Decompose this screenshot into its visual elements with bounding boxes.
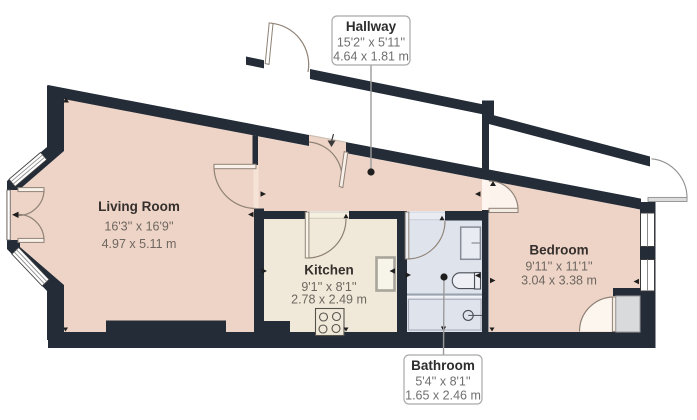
svg-text:3.04 x 3.38 m: 3.04 x 3.38 m (521, 274, 597, 288)
svg-text:16'3'' x 16'9'': 16'3'' x 16'9'' (104, 220, 173, 234)
svg-text:Living Room: Living Room (98, 199, 180, 214)
svg-text:Kitchen: Kitchen (304, 263, 354, 278)
svg-text:5'4'' x 8'1'': 5'4'' x 8'1'' (415, 375, 470, 389)
svg-text:9'11'' x 11'1'': 9'11'' x 11'1'' (525, 260, 592, 274)
svg-text:1.65 x 2.46 m: 1.65 x 2.46 m (405, 389, 481, 403)
svg-text:Bedroom: Bedroom (529, 243, 588, 258)
svg-text:Hallway: Hallway (346, 19, 397, 34)
svg-text:2.78 x 2.49 m: 2.78 x 2.49 m (291, 293, 367, 307)
svg-text:15'2'' x 5'11'': 15'2'' x 5'11'' (337, 36, 405, 50)
svg-text:4.97 x 5.11 m: 4.97 x 5.11 m (102, 237, 177, 251)
svg-text:4.64 x 1.81 m: 4.64 x 1.81 m (333, 50, 409, 64)
svg-text:Bathroom: Bathroom (411, 358, 475, 373)
